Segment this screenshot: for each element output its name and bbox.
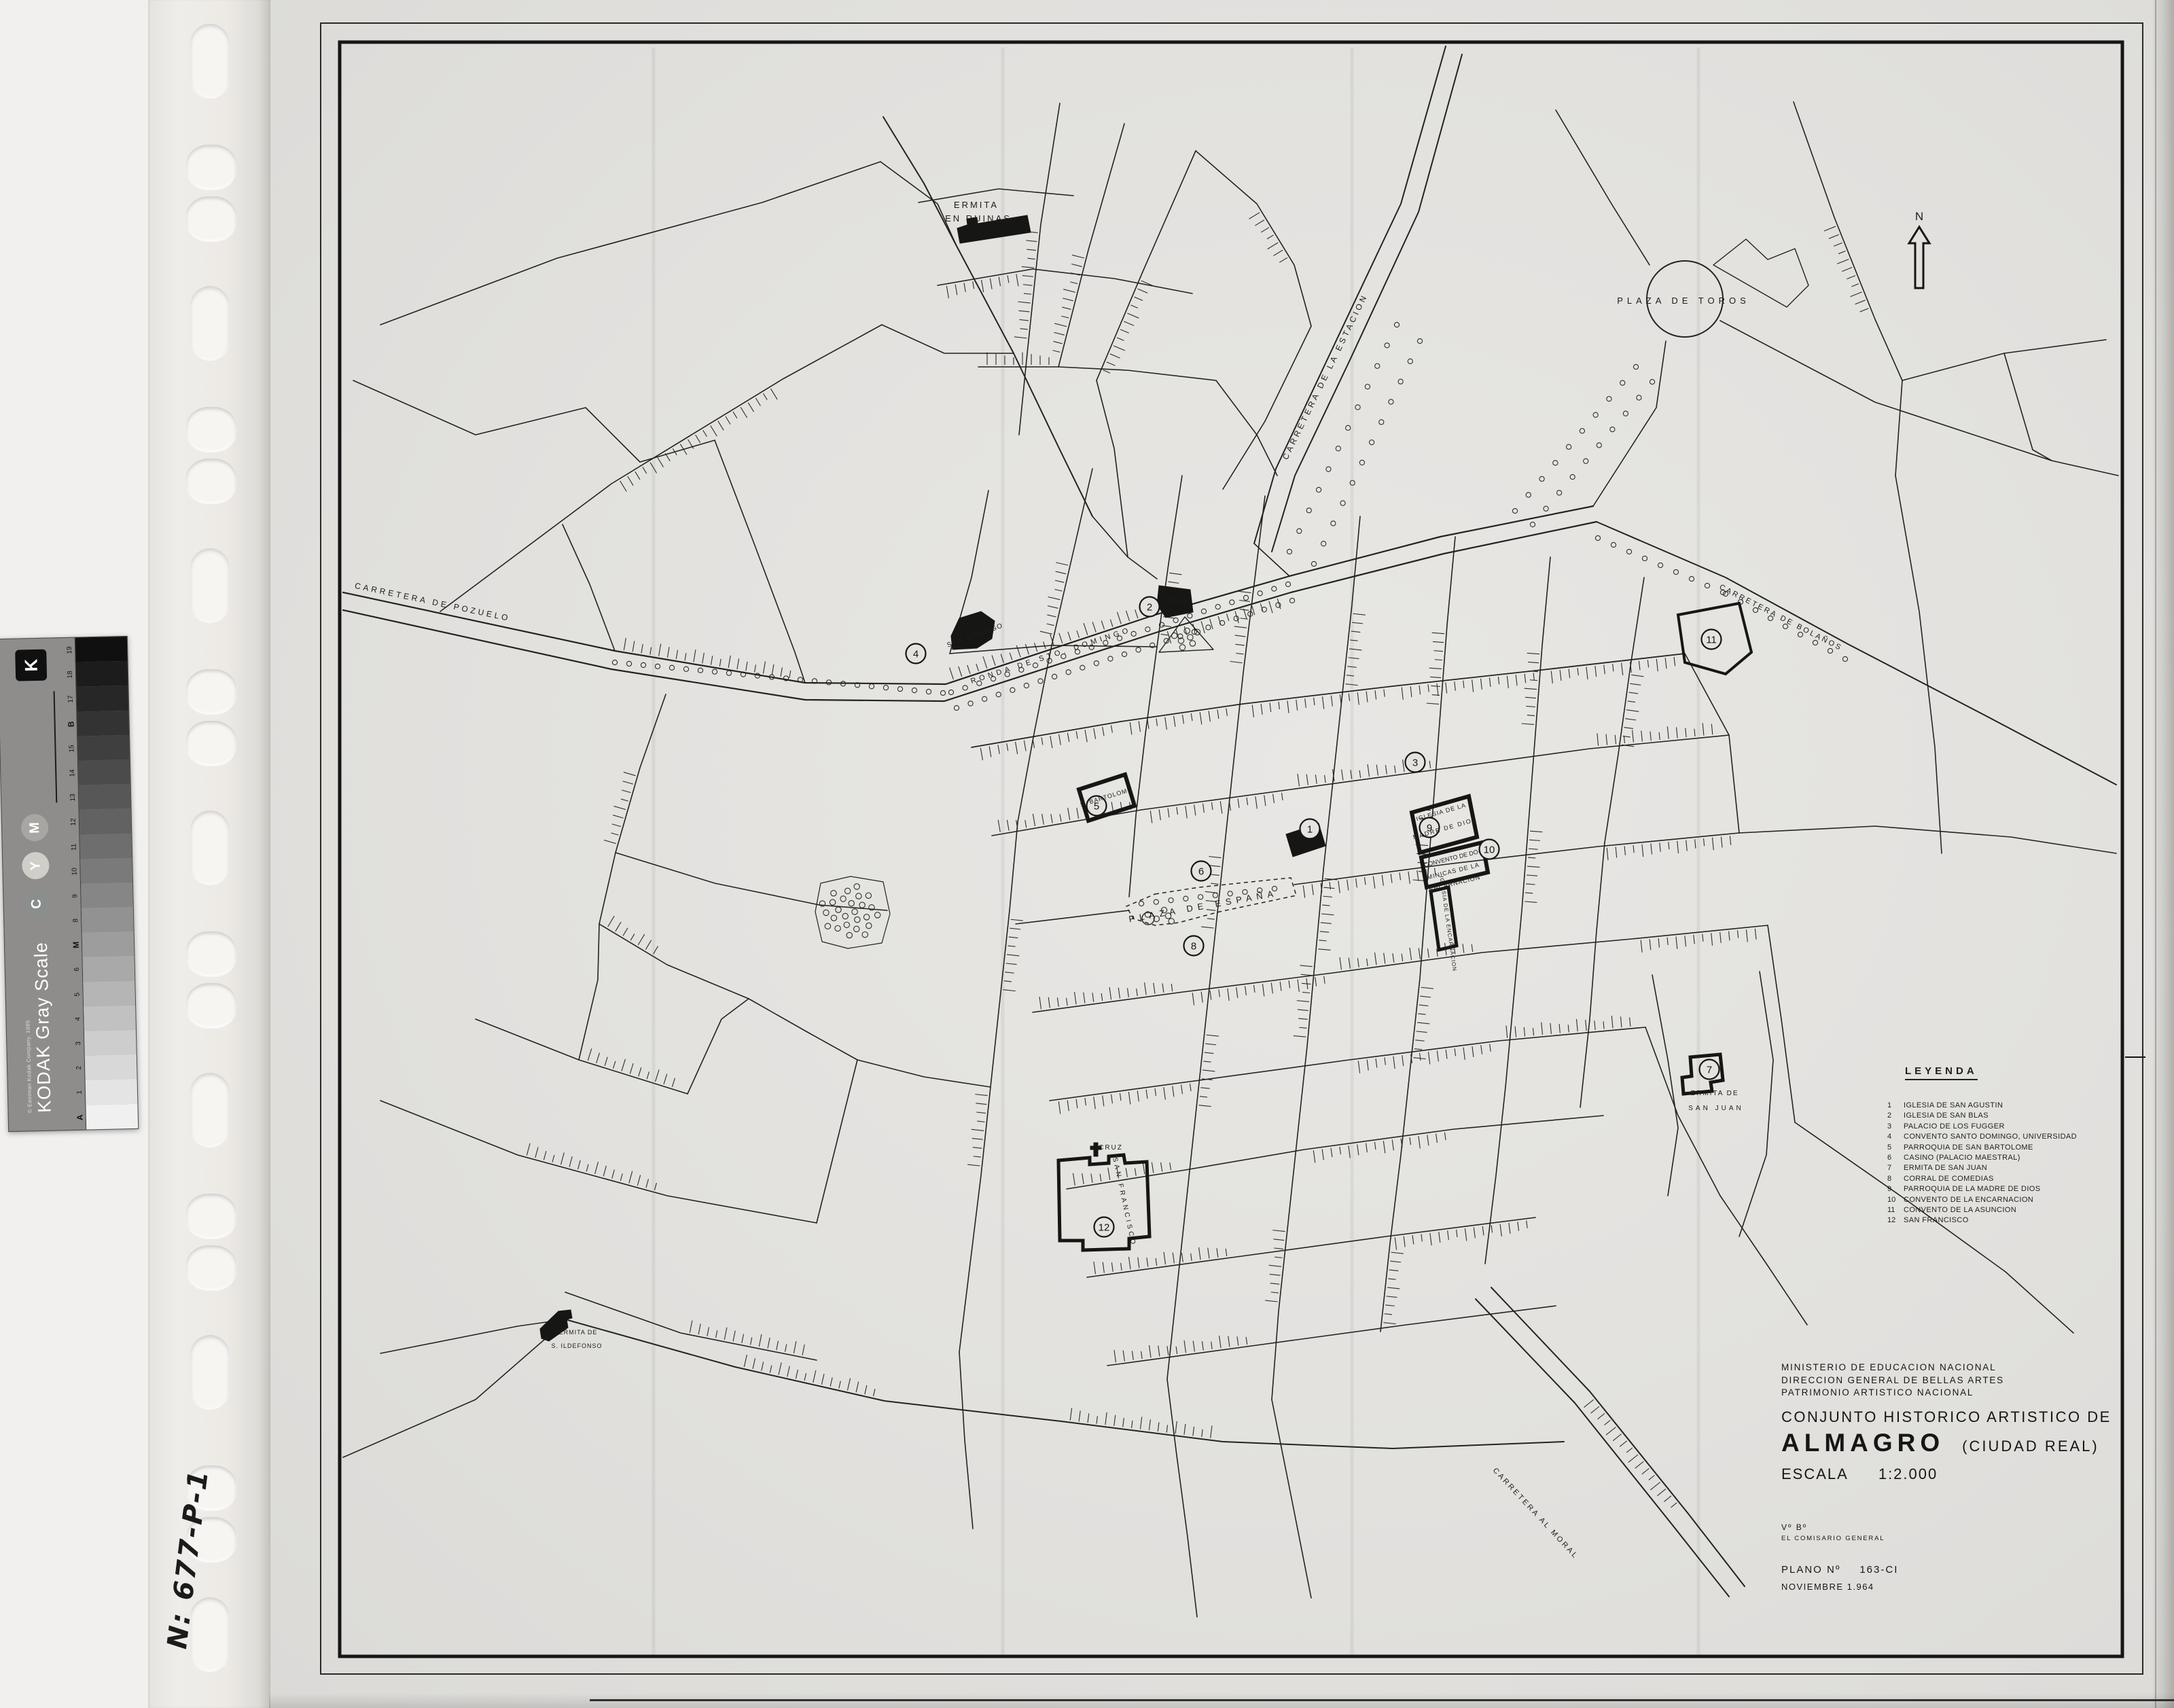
parcel-tick xyxy=(1633,730,1634,742)
parcel-tick xyxy=(1306,775,1308,785)
parcel-tick xyxy=(1057,997,1058,1006)
parcel-tick xyxy=(1174,716,1175,727)
tree-icon xyxy=(1285,582,1290,586)
map-label: CRUZ xyxy=(1099,1144,1123,1152)
parcel-tick xyxy=(1152,1162,1154,1173)
parcel-tick xyxy=(1416,1031,1427,1033)
tree-icon xyxy=(1595,535,1600,540)
binder-slot xyxy=(190,286,230,361)
parcel-tick xyxy=(748,403,753,412)
tree-icon xyxy=(1633,364,1638,369)
parcel-tick xyxy=(1056,571,1067,574)
monument-number: 8 xyxy=(1191,941,1196,953)
parcel-tick xyxy=(696,435,700,443)
street-line xyxy=(1605,577,1644,842)
street-line xyxy=(1729,735,1739,833)
north-arrow-icon xyxy=(1909,227,1929,288)
parcel-tick xyxy=(728,656,730,668)
parcel-tick xyxy=(1113,346,1125,351)
parcel-tick xyxy=(1755,929,1756,940)
parcel-tick xyxy=(1110,620,1113,627)
parcel-tick xyxy=(1376,1058,1377,1067)
parcel-tick xyxy=(1436,1134,1438,1143)
parcel-tick xyxy=(1559,1024,1560,1033)
parcel-tick xyxy=(781,668,782,677)
parcel-tick xyxy=(1421,987,1433,989)
legend-item: 1IGLESIA DE SAN AGUSTIN xyxy=(1887,1101,2077,1111)
parcel-tick xyxy=(1275,1257,1282,1258)
tree-icon xyxy=(626,661,631,666)
parcel-tick xyxy=(1255,220,1264,226)
gray-step-patch xyxy=(82,907,134,933)
plan-number-label: PLANO Nº xyxy=(1781,1564,1840,1576)
parcel-tick xyxy=(1016,274,1018,286)
parcel-tick xyxy=(1376,765,1378,776)
parcel-tick xyxy=(1205,1052,1214,1053)
tree-icon xyxy=(1336,446,1340,451)
parcel-tick xyxy=(527,1143,530,1156)
parcel-tick xyxy=(1239,591,1251,592)
gray-scale-patches xyxy=(75,637,138,1130)
parcel-tick xyxy=(672,1078,675,1087)
parcel-tick xyxy=(1202,1070,1215,1071)
parcel-tick xyxy=(982,280,984,292)
parcel-tick xyxy=(1667,938,1668,945)
parcel-tick xyxy=(1154,983,1155,994)
parcel-tick xyxy=(1191,1253,1192,1261)
tree-icon xyxy=(823,910,829,915)
parcel-tick xyxy=(755,664,756,672)
parcel-tick xyxy=(1252,705,1253,717)
parcel-tick xyxy=(1594,1020,1595,1030)
parcel-tick xyxy=(1247,798,1248,805)
street-line xyxy=(1167,849,1224,1379)
parcel-tick xyxy=(1606,734,1607,745)
parcel-tick xyxy=(1620,1016,1621,1027)
tree-icon xyxy=(1145,627,1150,632)
tree-icon xyxy=(1642,556,1647,561)
tree-icon xyxy=(963,686,967,690)
map-label: S. ILDEFONSO xyxy=(551,1342,602,1349)
parcel-tick xyxy=(1202,1341,1203,1350)
gray-step-patch xyxy=(86,1103,138,1129)
parcel-tick xyxy=(1018,310,1029,312)
tree-icon xyxy=(1287,549,1291,554)
province-name: (CIUDAD REAL) xyxy=(1962,1438,2099,1455)
legend-item: 10CONVENTO DE LA ENCARNACION xyxy=(1887,1195,2077,1205)
scanned-document: 123456789101112 ERMITAEN RUINASPLAZA DE … xyxy=(0,0,2174,1708)
parcel-tick xyxy=(1147,719,1149,728)
tree-icon xyxy=(1584,459,1588,463)
parcel-tick xyxy=(1624,846,1625,855)
parcel-tick xyxy=(1047,615,1056,617)
parcel-tick xyxy=(1435,660,1442,660)
street-line xyxy=(2004,353,2052,461)
tree-icon xyxy=(866,923,872,928)
map-label: ERMITA DE xyxy=(1690,1090,1739,1097)
parcel-tick xyxy=(1665,658,1667,669)
tree-icon xyxy=(940,690,945,695)
gray-step-patch xyxy=(84,1006,136,1031)
parcel-tick xyxy=(771,389,778,399)
parcel-tick xyxy=(1061,316,1069,318)
parcel-tick xyxy=(1218,616,1221,625)
parcel-tick xyxy=(742,1334,744,1343)
parcel-tick xyxy=(1273,1239,1284,1241)
tree-icon xyxy=(948,690,953,694)
parcel-tick xyxy=(802,1345,804,1355)
parcel-tick xyxy=(702,653,705,664)
tree-icon xyxy=(1626,549,1631,554)
parcel-tick xyxy=(1062,307,1071,309)
parcel-tick xyxy=(1525,893,1533,893)
parcel-tick xyxy=(1842,268,1852,272)
parcel-tick xyxy=(741,407,747,418)
tree-icon xyxy=(1567,444,1571,449)
monument-footprint xyxy=(540,1310,572,1341)
parcel-tick xyxy=(1111,1262,1113,1271)
parcel-tick xyxy=(1615,735,1616,745)
parcel-tick xyxy=(1597,733,1599,745)
parcel-tick xyxy=(1560,670,1561,681)
parcel-tick xyxy=(1094,728,1096,739)
parcel-tick xyxy=(1101,621,1104,630)
parcel-tick xyxy=(847,1378,850,1391)
parcel-tick xyxy=(1694,935,1694,944)
parcel-tick xyxy=(1050,736,1052,748)
parcel-tick xyxy=(1094,1097,1095,1109)
tree-icon xyxy=(1213,893,1217,897)
parcel-tick xyxy=(1236,987,1238,998)
parcel-tick xyxy=(983,656,987,668)
tree-icon xyxy=(1184,628,1190,633)
parcel-tick xyxy=(664,1074,667,1084)
parcel-tick xyxy=(1430,1233,1431,1245)
parcel-tick xyxy=(1352,622,1363,624)
parcel-tick xyxy=(1729,931,1730,941)
parcel-tick xyxy=(1455,1048,1455,1056)
parcel-tick xyxy=(1097,1416,1097,1423)
parcel-tick xyxy=(1829,234,1839,238)
parcel-tick xyxy=(796,1370,798,1378)
parcel-tick xyxy=(1387,1287,1400,1289)
parcel-tick xyxy=(1427,703,1439,704)
parcel-tick xyxy=(1201,927,1213,928)
parcel-tick xyxy=(718,421,724,431)
plan-date: NOVIEMBRE 1.964 xyxy=(1781,1582,2111,1592)
parcel-tick xyxy=(1657,1489,1665,1496)
legend-item: 2IGLESIA DE SAN BLAS xyxy=(1887,1111,2077,1121)
parcel-tick xyxy=(1181,1253,1183,1262)
parcel-tick xyxy=(1730,836,1730,845)
parcel-tick xyxy=(650,647,652,655)
parcel-tick xyxy=(1170,1162,1171,1170)
street-line xyxy=(1768,925,1795,1122)
street-line xyxy=(1019,103,1060,435)
parcel-tick xyxy=(1150,811,1152,823)
parcel-tick xyxy=(1235,644,1244,645)
parcel-tick xyxy=(1305,698,1306,708)
parcel-tick xyxy=(1262,984,1264,996)
tree-icon xyxy=(1215,605,1220,609)
monument-buildings xyxy=(540,215,1751,1341)
parcel-tick xyxy=(1357,692,1359,705)
tree-icon xyxy=(996,692,1001,697)
parcel-tick xyxy=(1633,845,1634,853)
parcel-tick xyxy=(1060,814,1061,821)
tree-icon xyxy=(1607,397,1611,402)
parcel-tick xyxy=(1463,944,1464,953)
parcel-tick xyxy=(624,772,636,776)
parcel-tick xyxy=(1611,1016,1613,1028)
parcel-tick xyxy=(1092,993,1094,1001)
parcel-tick xyxy=(1279,257,1287,262)
parcel-tick xyxy=(698,1323,700,1334)
parcel-tick xyxy=(1389,1270,1399,1270)
kodak-logo-icon: K xyxy=(15,650,47,681)
parcel-tick xyxy=(603,1166,606,1176)
parcel-tick xyxy=(1289,980,1289,988)
gray-step-patch xyxy=(79,808,132,834)
parcel-tick xyxy=(1694,729,1695,736)
parcel-tick xyxy=(1008,275,1009,283)
parcel-tick xyxy=(1527,875,1537,876)
parcel-tick xyxy=(1299,1027,1306,1028)
parcel-tick xyxy=(1677,841,1679,853)
street-line xyxy=(565,1319,1061,1421)
legend-item-label: CONVENTO SANTO DOMINGO, UNIVERSIDAD xyxy=(1904,1132,2077,1142)
parcel-tick xyxy=(1595,666,1597,677)
parcel-tick xyxy=(1340,1147,1341,1154)
parcel-tick xyxy=(1167,1346,1169,1355)
legend-item: 8CORRAL DE COMEDIAS xyxy=(1887,1174,2077,1184)
ministry-line: MINISTERIO DE EDUCACION NACIONAL xyxy=(1781,1362,2111,1374)
parcel-tick xyxy=(1298,1018,1308,1019)
parcel-tick xyxy=(1367,1060,1368,1071)
parcel-tick xyxy=(1314,698,1315,705)
parcel-tick xyxy=(1664,1496,1671,1502)
parcel-tick xyxy=(1269,1265,1281,1266)
parcel-tick xyxy=(1145,982,1146,995)
parcel-tick xyxy=(1209,866,1220,867)
tree-icon xyxy=(1379,420,1384,425)
parcel-tick xyxy=(1164,1087,1165,1099)
parcel-tick xyxy=(1421,1234,1422,1241)
parcel-tick xyxy=(1070,1408,1071,1420)
monument-number: 1 xyxy=(1307,824,1313,836)
parcel-tick xyxy=(1279,702,1279,709)
plan-number-value: 163-CI xyxy=(1859,1564,1898,1576)
street-line xyxy=(1794,102,1902,476)
parcel-tick xyxy=(1014,337,1027,338)
parcel-tick xyxy=(1419,686,1420,695)
series-title: CONJUNTO HISTORICO ARTISTICO DE xyxy=(1781,1408,2111,1426)
parcel-tick xyxy=(1660,842,1660,852)
tree-icon xyxy=(1597,443,1601,448)
tree-icon xyxy=(1066,670,1071,675)
tree-icon xyxy=(854,884,859,889)
parcel-tick xyxy=(1324,976,1325,984)
parcel-tick xyxy=(1444,1133,1446,1140)
parcel-tick xyxy=(1159,809,1160,820)
tree-icon xyxy=(1553,461,1558,465)
parcel-tick xyxy=(1358,1061,1359,1073)
street-line xyxy=(1033,925,1768,1012)
street-line xyxy=(1196,151,1311,326)
monument-number-badges: 123456789101112 xyxy=(906,597,1722,1237)
parcel-tick xyxy=(1280,982,1281,991)
map-label: SAN JUAN xyxy=(1688,1105,1743,1112)
street-line xyxy=(380,1101,817,1223)
parcel-tick xyxy=(1526,706,1535,707)
parcel-tick xyxy=(1149,1419,1150,1430)
legend-item-label: SAN FRANCISCO xyxy=(1904,1215,1969,1226)
parcel-tick xyxy=(1671,1503,1677,1508)
legend-item-number: 4 xyxy=(1887,1132,1904,1142)
binder-hole xyxy=(186,931,236,976)
parcel-tick xyxy=(1321,914,1334,915)
parcel-tick xyxy=(1526,884,1535,885)
parcel-tick xyxy=(1054,332,1065,335)
tree-icon xyxy=(849,900,854,906)
parcel-tick xyxy=(1088,1413,1089,1422)
parcel-tick xyxy=(1127,988,1128,997)
parcel-tick xyxy=(711,425,717,436)
plan-title-row: ALMAGRO (CIUDAD REAL) xyxy=(1781,1429,2111,1457)
binder-hole xyxy=(186,459,236,503)
parcel-tick xyxy=(1016,742,1018,754)
tree-icon xyxy=(1398,379,1403,384)
parcel-tick xyxy=(1103,370,1110,373)
parcel-tick xyxy=(676,650,677,659)
tree-icon xyxy=(1316,487,1321,492)
tree-icon xyxy=(1052,674,1056,679)
tree-icon xyxy=(1289,598,1294,603)
legend-item-label: ERMITA DE SAN JUAN xyxy=(1904,1163,1987,1173)
parcel-tick xyxy=(1103,1095,1104,1106)
parcel-tick xyxy=(1322,905,1330,906)
binder-hole xyxy=(186,983,236,1028)
parcel-tick xyxy=(1433,651,1443,652)
parcel-tick xyxy=(865,1385,867,1394)
parcel-tick xyxy=(977,1121,984,1122)
parcel-tick xyxy=(1085,1098,1086,1105)
parcel-tick xyxy=(1254,985,1255,993)
parcel-tick xyxy=(1437,1051,1438,1062)
parcel-tick xyxy=(1281,793,1283,800)
parcel-tick xyxy=(1528,662,1539,662)
parcel-tick xyxy=(1193,1427,1194,1436)
legend-item-label: CONVENTO DE LA ASUNCION xyxy=(1904,1205,2016,1215)
parcel-tick xyxy=(1026,241,1037,242)
tree-icon xyxy=(1183,896,1188,901)
tree-icon xyxy=(1321,541,1326,546)
parcel-tick xyxy=(1428,1052,1429,1064)
parcel-tick xyxy=(1067,733,1069,742)
parcel-tick xyxy=(753,1358,755,1369)
parcel-tick xyxy=(777,1341,779,1350)
legend-item-label: PALACIO DE LOS FUGGER xyxy=(1904,1122,2005,1132)
street-line xyxy=(563,524,615,651)
approval-vb: Vº Bº xyxy=(1781,1523,2111,1532)
parcel-tick xyxy=(1186,806,1187,818)
parcel-tick xyxy=(1211,1342,1213,1349)
parcel-tick xyxy=(1161,634,1169,635)
parcel-tick xyxy=(1053,351,1061,353)
parcel-tick xyxy=(620,481,627,492)
monument-number: 4 xyxy=(913,649,919,660)
parcel-tick xyxy=(1139,721,1140,732)
parcel-tick xyxy=(1147,1258,1148,1266)
parcel-tick xyxy=(1079,1410,1080,1421)
gray-step-patch xyxy=(77,710,129,736)
binder-hole xyxy=(186,721,236,766)
street-line xyxy=(1272,54,1462,552)
plaza-outline xyxy=(1159,617,1213,652)
parcel-tick xyxy=(1130,722,1132,734)
parcel-tick xyxy=(719,659,721,666)
tree-icon xyxy=(852,909,857,914)
tree-icon xyxy=(1637,395,1641,400)
tree-icon xyxy=(1689,576,1694,581)
street-line xyxy=(1485,822,1529,1264)
parcel-tick xyxy=(972,1129,984,1131)
parcel-tick xyxy=(595,1162,599,1174)
parcel-tick xyxy=(1273,794,1275,803)
gray-step-patch xyxy=(83,980,135,1006)
parcel-tick xyxy=(992,655,995,665)
tree-icon xyxy=(1530,522,1535,527)
parcel-tick xyxy=(1027,249,1036,250)
street-line xyxy=(599,694,666,924)
parcel-tick xyxy=(1650,1482,1660,1490)
street-line xyxy=(749,999,857,1060)
tree-icon xyxy=(1010,688,1015,692)
parcel-tick xyxy=(1132,1421,1133,1428)
tree-icon xyxy=(863,914,869,920)
parcel-tick xyxy=(1838,251,1845,253)
street-line xyxy=(599,924,749,999)
parcel-tick xyxy=(1647,660,1648,667)
parcel-tick xyxy=(1527,715,1535,716)
parcel-tick xyxy=(1641,940,1642,953)
legend-item: 11CONVENTO DE LA ASUNCION xyxy=(1887,1205,2077,1215)
parcel-tick xyxy=(1427,1135,1429,1145)
street-line xyxy=(579,924,599,1060)
parcel-tick xyxy=(1860,308,1869,312)
parcel-tick xyxy=(1022,266,1034,268)
parcel-tick xyxy=(1374,1142,1376,1150)
tree-icon xyxy=(1139,901,1143,906)
legend-item: 9PARROQUIA DE LA MADRE DE DIOS xyxy=(1887,1184,2077,1194)
parcel-tick xyxy=(950,668,954,679)
parcel-tick xyxy=(1656,659,1658,671)
parcel-tick xyxy=(1146,1090,1147,1099)
gray-step-patch xyxy=(82,931,135,957)
tree-icon xyxy=(1539,476,1544,481)
parcel-tick xyxy=(1323,696,1324,709)
parcel-tick xyxy=(1138,1258,1139,1268)
tree-icon xyxy=(1190,641,1195,646)
parcel-tick xyxy=(1509,1223,1510,1234)
legend-item: 3PALACIO DE LOS FUGGER xyxy=(1887,1122,2077,1132)
parcel-tick xyxy=(1622,663,1623,675)
parcel-tick xyxy=(1387,1296,1397,1298)
parcel-tick xyxy=(1176,1347,1177,1354)
parcel-tick xyxy=(711,656,713,664)
parcel-tick xyxy=(1068,808,1070,820)
parcel-tick xyxy=(1630,683,1641,685)
